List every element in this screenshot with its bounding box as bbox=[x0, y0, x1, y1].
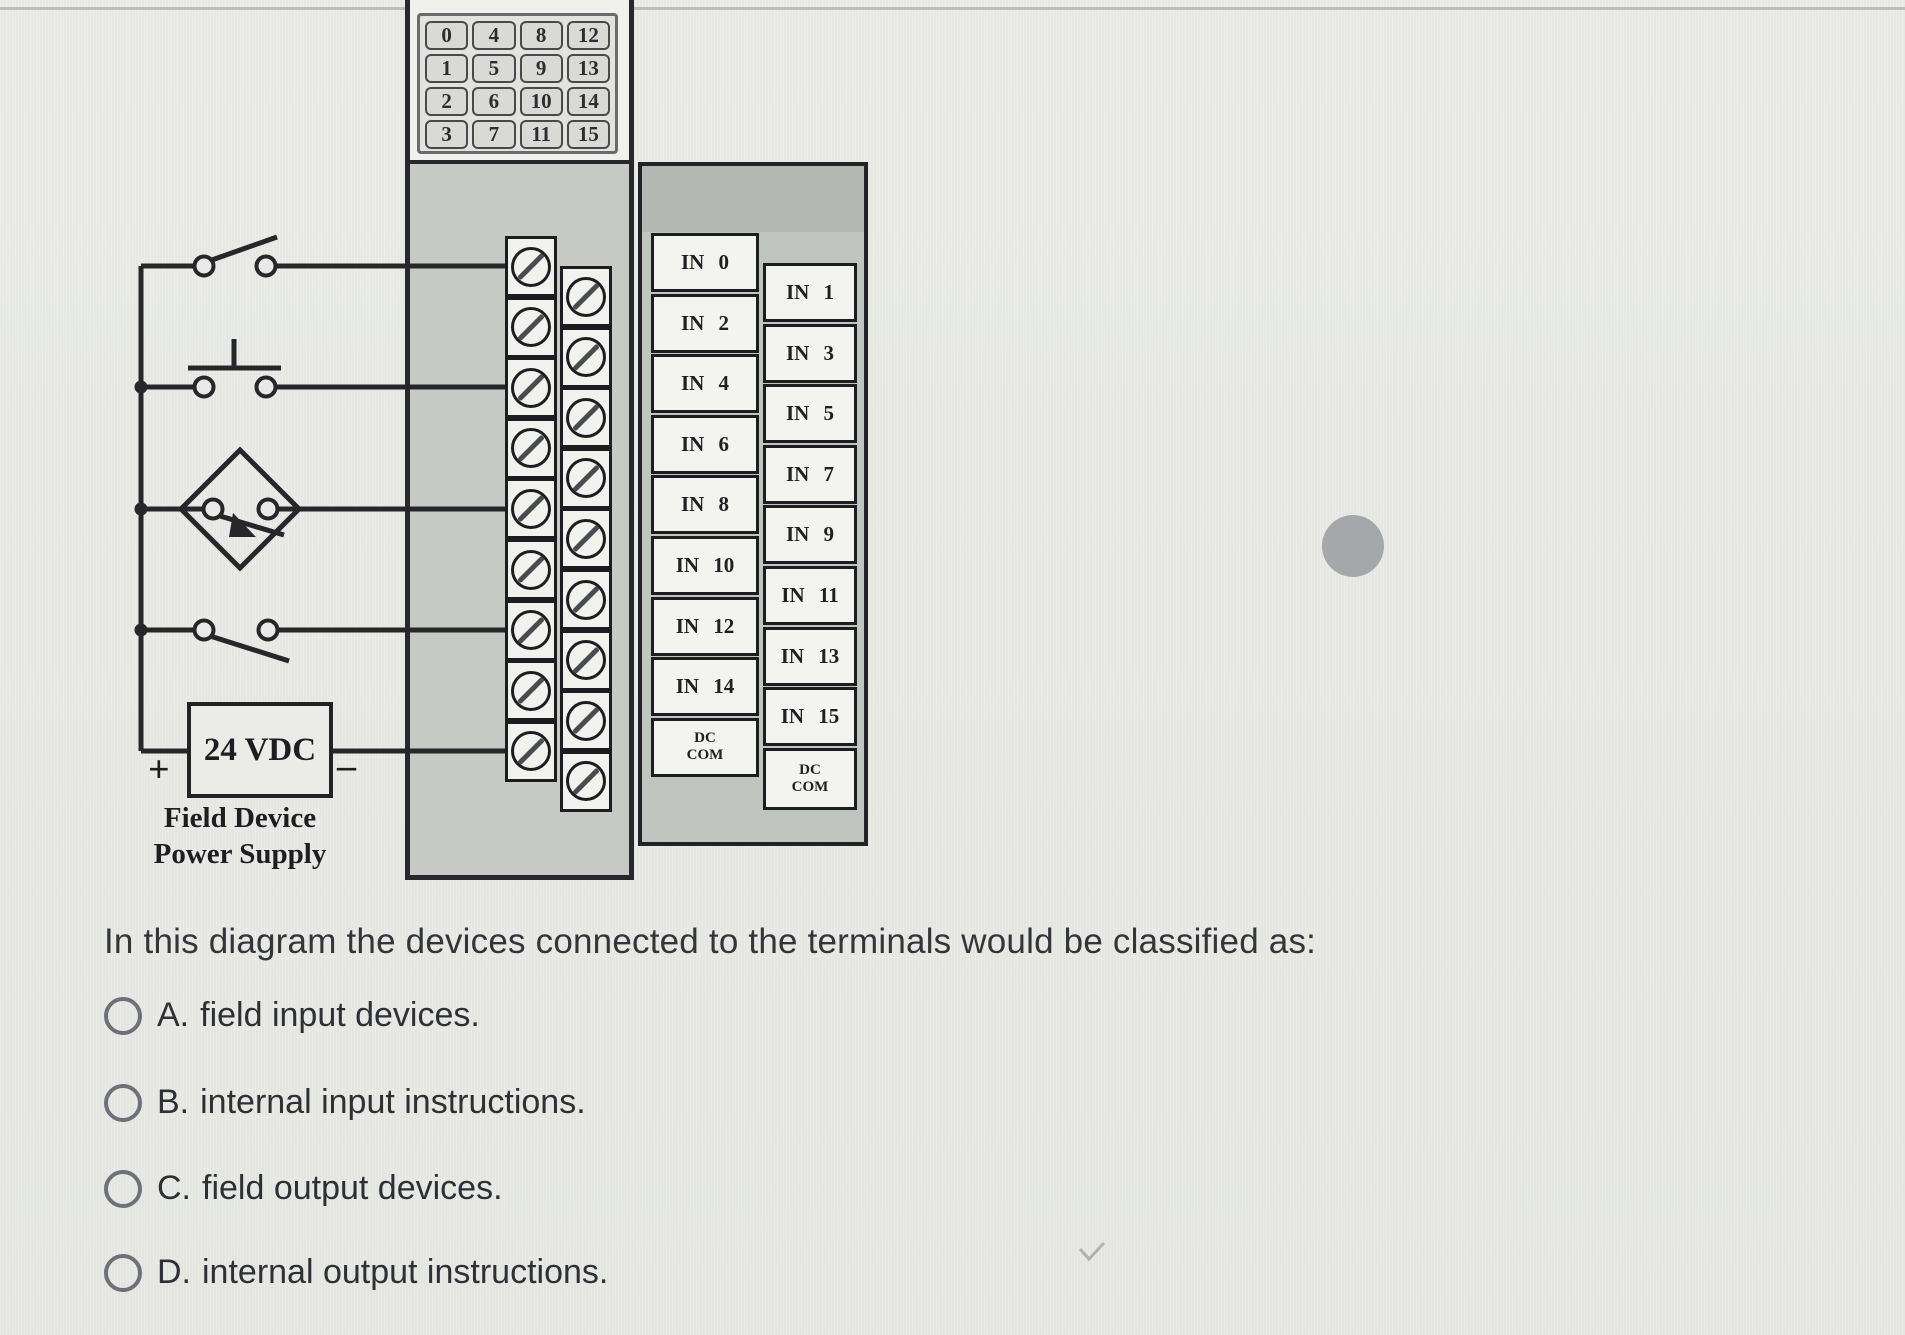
wire-junction-dot bbox=[135, 381, 148, 394]
terminal-label: IN 10 bbox=[651, 536, 759, 595]
contact-terminal-icon bbox=[195, 257, 214, 276]
wire-junction-dot bbox=[135, 624, 148, 637]
contact-terminal-icon bbox=[257, 378, 276, 397]
psu-caption-line2: Power Supply bbox=[130, 838, 350, 871]
proximity-contact-lever-icon bbox=[220, 516, 284, 535]
contact-terminal-icon bbox=[259, 500, 278, 519]
terminal-screw bbox=[505, 236, 557, 297]
terminal-screw bbox=[505, 600, 557, 661]
terminal-screw bbox=[560, 387, 612, 448]
terminal-label: IN 1 bbox=[763, 263, 857, 322]
psu-minus-sign: – bbox=[337, 744, 356, 788]
contact-terminal-icon bbox=[259, 621, 278, 640]
terminal-label: IN 7 bbox=[763, 445, 857, 504]
terminal-label: DC COM bbox=[763, 748, 857, 810]
terminal-screw bbox=[560, 266, 612, 327]
terminal-label: IN 2 bbox=[651, 294, 759, 353]
wiring-schematic bbox=[0, 0, 1905, 1335]
terminal-label: IN 0 bbox=[651, 233, 759, 292]
terminal-label: DC COM bbox=[651, 718, 759, 777]
terminal-screw bbox=[505, 539, 557, 600]
wire-junction-dot bbox=[135, 503, 148, 516]
terminal-screw bbox=[505, 478, 557, 539]
terminal-screw bbox=[505, 297, 557, 358]
limit-switch-lever-icon bbox=[210, 636, 289, 661]
terminal-screw bbox=[560, 569, 612, 630]
terminal-label: IN 9 bbox=[763, 505, 857, 564]
terminal-screw bbox=[505, 721, 557, 782]
terminal-screw bbox=[505, 418, 557, 479]
terminal-screw bbox=[560, 327, 612, 388]
terminal-screw bbox=[560, 508, 612, 569]
power-supply-box: 24 VDC bbox=[187, 702, 333, 798]
terminal-screw bbox=[560, 630, 612, 691]
psu-plus-sign: + bbox=[148, 748, 170, 792]
terminal-label: IN 5 bbox=[763, 384, 857, 443]
terminal-label: IN 8 bbox=[651, 475, 759, 534]
terminal-screw bbox=[560, 751, 612, 812]
terminal-label: IN 6 bbox=[651, 415, 759, 474]
terminal-label: IN 4 bbox=[651, 354, 759, 413]
terminal-label: IN 15 bbox=[763, 687, 857, 746]
terminal-label: IN 3 bbox=[763, 324, 857, 383]
stray-mark bbox=[1080, 1243, 1104, 1259]
terminal-screw bbox=[560, 690, 612, 751]
psu-caption-line1: Field Device bbox=[130, 802, 350, 835]
terminal-label: IN 14 bbox=[651, 657, 759, 716]
quiz-page: 0481215913261014371115 bbox=[0, 0, 1905, 1335]
terminal-screw bbox=[505, 357, 557, 418]
terminal-label: IN 12 bbox=[651, 597, 759, 656]
terminal-screw bbox=[560, 448, 612, 509]
terminal-label: IN 11 bbox=[763, 566, 857, 625]
terminal-label: IN 13 bbox=[763, 627, 857, 686]
contact-terminal-icon bbox=[204, 500, 223, 519]
contact-terminal-icon bbox=[195, 621, 214, 640]
contact-terminal-icon bbox=[257, 257, 276, 276]
terminal-screw bbox=[505, 660, 557, 721]
gray-dot bbox=[1322, 515, 1384, 577]
contact-terminal-icon bbox=[195, 378, 214, 397]
